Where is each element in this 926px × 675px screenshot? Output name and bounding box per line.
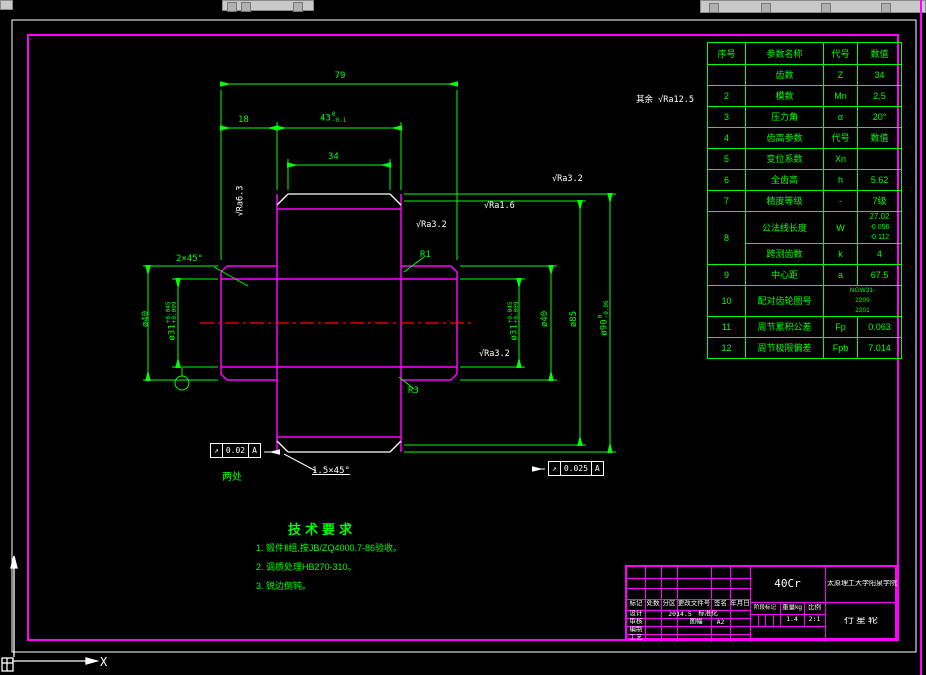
- table-row: 11 周节累积公差 Fp 0.063: [708, 317, 902, 338]
- table-header-row: 序号 参数名称 代号 数值: [708, 43, 902, 65]
- dim-hub-width: 18: [238, 115, 249, 125]
- tb-scale-value: 2:1: [804, 615, 825, 623]
- cad-application-window: 79 18 430-0.1 34 2×45° ø40 ø31+0.045+0.0…: [0, 0, 926, 675]
- table-row: 6 全齿高 h 5.62: [708, 170, 902, 191]
- dim-tip-dia: ø900-0.06: [598, 280, 610, 356]
- ucs-x-label: X: [100, 655, 107, 669]
- table-row: 9 中心距 a 67.5: [708, 265, 902, 286]
- tb-header-zone: 分区: [661, 600, 677, 608]
- dim-chamfer-bottom: 1.5×45°: [312, 466, 350, 476]
- table-row: 8 公法线长度 W 27.02 -0.056 -0.112: [708, 212, 902, 244]
- dim-hub-dia-right: ø40: [540, 291, 550, 347]
- tb-weight-label: 重量kg: [780, 604, 804, 612]
- finish-top-right: √Ra1.6: [484, 201, 515, 211]
- runout-icon: ↗: [210, 443, 223, 458]
- dim-bore-dia-left: ø31+0.045+0.009: [166, 286, 178, 356]
- tb-scale-label: 比例: [804, 604, 825, 612]
- tech-requirements-title: 技术要求: [288, 519, 356, 538]
- title-block: 标记 处数 分区 更改文件号 签名 年月日 设计 2014.5 标准化 审核 图…: [625, 565, 897, 640]
- tb-school: 太原理工大学阳泉学院: [825, 580, 899, 588]
- tb-header-count: 处数: [645, 600, 661, 608]
- tb-stage-label: 阶段标记: [750, 604, 780, 612]
- tb-header-sign: 签名: [711, 600, 730, 608]
- tb-header-date: 年月日: [730, 600, 750, 608]
- tb-standardization: 标准化: [693, 610, 723, 618]
- tb-sheet-size: A2: [711, 618, 730, 626]
- tech-requirement-item: 1. 锻件Ⅱ组,按JB/ZQ4000.7-86验收。: [256, 541, 402, 554]
- tb-row-audit: 审核: [627, 618, 645, 626]
- gear-parameter-table: 序号 参数名称 代号 数值 齿数 Z 34 2 模数 Mn 2.5 3 压力角 …: [707, 42, 902, 359]
- dim-gear-width: 430-0.1: [320, 112, 346, 124]
- tech-requirement-item: 2. 调质处理HB270-310。: [256, 560, 357, 573]
- finish-rest: 其余 √Ra12.5: [636, 93, 694, 105]
- label-two-places: 两处: [222, 468, 242, 483]
- extension-lines: [143, 90, 616, 452]
- finish-flank: √Ra3.2: [416, 220, 447, 230]
- table-row: 2 模数 Mn 2.5: [708, 86, 902, 107]
- runout-icon: ↗: [548, 461, 561, 476]
- tb-header-doc: 更改文件号: [677, 600, 711, 608]
- tb-part-name: 行星轮: [825, 617, 899, 625]
- surface-finish-icon: √: [235, 211, 245, 216]
- tb-weight-value: 1.4: [780, 615, 804, 623]
- dim-chamfer-left: 2×45°: [176, 254, 203, 264]
- dim-rim-width: 34: [328, 152, 339, 162]
- finish-bore-right: √Ra3.2: [479, 349, 510, 359]
- label-fillet-r3: R3: [408, 386, 419, 396]
- tb-design-date: 2014.5: [663, 610, 697, 618]
- tb-header-mark: 标记: [627, 600, 645, 608]
- white-leaders: [264, 452, 545, 471]
- ucs-axis-icon: [2, 556, 97, 671]
- label-fillet-r1: R1: [420, 250, 431, 260]
- dim-hub-dia-left: ø40: [141, 291, 151, 347]
- dim-total-width: 79: [320, 71, 360, 81]
- table-row: 齿数 Z 34: [708, 65, 902, 86]
- table-row: 10 配对齿轮图号 NGW31- 2209 2201: [708, 286, 902, 317]
- finish-rim: √Ra3.2: [552, 174, 583, 184]
- tb-row-design: 设计: [627, 610, 645, 618]
- tb-sheet-label: 图幅: [685, 618, 707, 626]
- table-row: 7 精度等级 - 7级: [708, 191, 902, 212]
- dim-bore-dia-right: ø31+0.045+0.009: [508, 286, 520, 356]
- table-row: 3 压力角 α 20°: [708, 107, 902, 128]
- table-row: 4 齿高参数 代号 数值: [708, 128, 902, 149]
- table-row: 12 周节极限偏差 Fpb 7.014: [708, 338, 902, 359]
- table-row: 5 变位系数 Xn: [708, 149, 902, 170]
- tb-row-process: 工艺: [627, 634, 645, 642]
- dimension-lines: [148, 84, 610, 452]
- tech-requirement-item: 3. 锐边倒钝。: [256, 579, 311, 592]
- gdt-frame-runout-1: ↗0.02A: [210, 443, 261, 458]
- tb-row-draw: 编制: [627, 626, 645, 634]
- tb-material: 40Cr: [750, 577, 825, 591]
- finish-left-face: √Ra6.3: [235, 186, 245, 217]
- dim-pitch-dia: ø85: [569, 291, 579, 347]
- gdt-frame-runout-2: ↗0.025A: [548, 461, 604, 476]
